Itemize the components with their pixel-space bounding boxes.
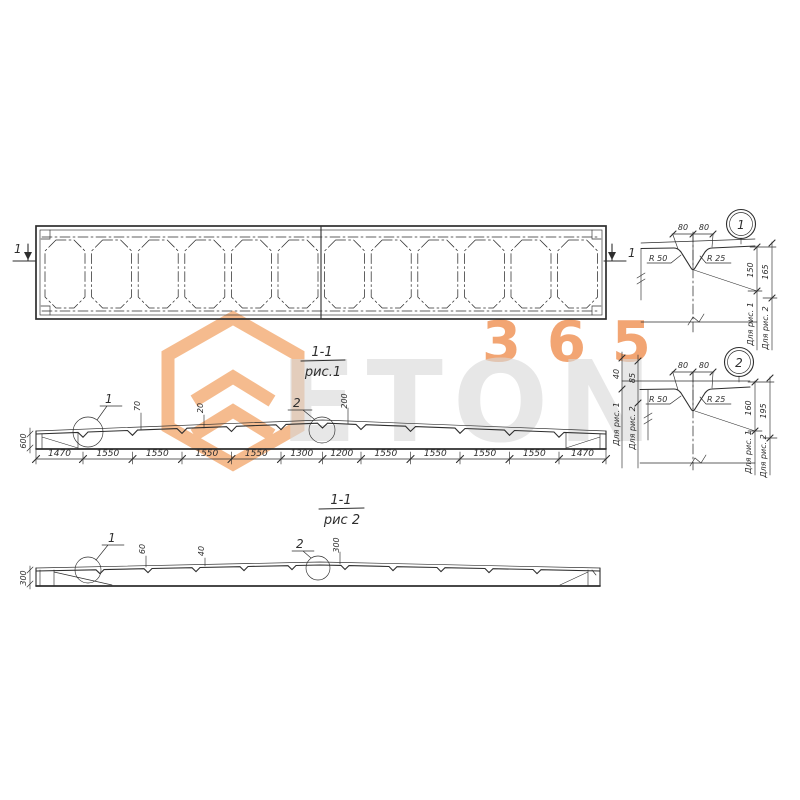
detail1-side-dim-value: 150 [746, 262, 755, 277]
dim-value: 1550 [424, 449, 447, 459]
fig2-callout2-label: 2 [296, 537, 304, 551]
fig2-groove-dim: 300 [332, 537, 341, 552]
fig1-callout1-label: 1 [105, 392, 113, 406]
detail2-left-dim-label: Для рис. 1 [612, 402, 621, 447]
detail1-radius-left: R 50 [649, 254, 667, 263]
dim-value: 1550 [523, 449, 546, 459]
dim-value: 1300 [290, 449, 313, 459]
fig1-groove-dim: 70 [133, 401, 142, 411]
section-fig1: 1-1 рис.1 1 2 70 20 200 600 [19, 345, 610, 464]
fig1-groove-dim: 20 [196, 403, 205, 413]
detail2-number: 2 [735, 356, 743, 370]
detail1-side-dim-label: Для рис. 1 [746, 302, 755, 347]
detail-1: 1 80 80 R 50 R 25 150 165 Для рис. 1 Для… [637, 210, 777, 351]
fig1-title: 1-1 [311, 345, 332, 360]
fig1-end-edges [36, 431, 606, 449]
fig1-callout2-circle [309, 417, 335, 443]
detail2-side-dim-value: 195 [759, 403, 768, 418]
detail1-radius-right: R 25 [707, 254, 725, 263]
detail1-side-dim-value: 165 [761, 264, 770, 279]
detail-2: 2 40 85 Для рис. 1 Для рис. 2 80 80 R 50… [612, 348, 777, 479]
detail2-top-dim: 80 [678, 361, 688, 370]
fig1-groove-dim: 200 [340, 393, 349, 408]
fig2-end-blocks [40, 570, 596, 586]
section-marker-right-label: 1 [628, 246, 636, 260]
plan-view: 1 1 [13, 226, 636, 319]
detail2-left-dim-value: 40 [612, 369, 621, 379]
dim-value: 1550 [374, 449, 397, 459]
blueprint-canvas: 365 ETON [0, 0, 800, 800]
dim-value: 1550 [146, 449, 169, 459]
detail2-left-dim-label: Для рис. 2 [628, 406, 637, 451]
fig2-end-edges [36, 568, 600, 586]
detail1-top-dim: 80 [699, 223, 709, 232]
section-marker-left-label: 1 [14, 242, 22, 256]
detail2-side-dim-label: Для рис. 2 [759, 434, 768, 479]
dim-value: 1470 [571, 449, 594, 459]
fig1-subtitle: рис.1 [304, 365, 341, 380]
detail2-radius-left: R 50 [649, 395, 667, 404]
fig1-extension-lines [36, 450, 606, 464]
dim-value: 1200 [330, 449, 353, 459]
detail2-left-dim-value: 85 [628, 373, 637, 383]
section-marker-right: 1 [604, 244, 636, 261]
dim-value: 1550 [245, 449, 268, 459]
section-fig2: 1-1 рис 2 1 2 60 40 300 300 [19, 493, 600, 589]
detail2-side-dim-label: Для рис. 1 [744, 430, 753, 475]
detail1-number: 1 [737, 218, 745, 232]
detail2-side-dim-value: 160 [744, 400, 753, 415]
fig2-callout1-label: 1 [108, 531, 116, 545]
detail2-top-dim: 80 [699, 361, 709, 370]
fig2-groove-dim: 60 [138, 544, 147, 554]
fig2-callout2-circle [306, 556, 330, 580]
fig2-title: 1-1 [330, 493, 351, 508]
dim-value: 1550 [473, 449, 496, 459]
fig1-top-surface [36, 423, 606, 437]
fig1-callout2-label: 2 [293, 396, 301, 410]
fig1-end-blocks [42, 433, 600, 449]
detail1-side-dim-label: Для рис. 2 [761, 306, 770, 351]
detail1-top-edge [641, 239, 755, 243]
detail1-top-dim: 80 [678, 223, 688, 232]
fig1-top-edge [36, 420, 606, 431]
detail2-radius-right: R 25 [707, 395, 725, 404]
fig2-left-height: 300 [19, 570, 28, 585]
fig1-left-height: 600 [19, 433, 28, 448]
dim-value: 1550 [195, 449, 218, 459]
section-marker-left: 1 [13, 242, 36, 261]
fig2-groove-dim: 40 [197, 546, 206, 556]
dim-value: 1470 [48, 449, 71, 459]
dim-value: 1550 [96, 449, 119, 459]
fig2-subtitle: рис 2 [323, 513, 360, 528]
